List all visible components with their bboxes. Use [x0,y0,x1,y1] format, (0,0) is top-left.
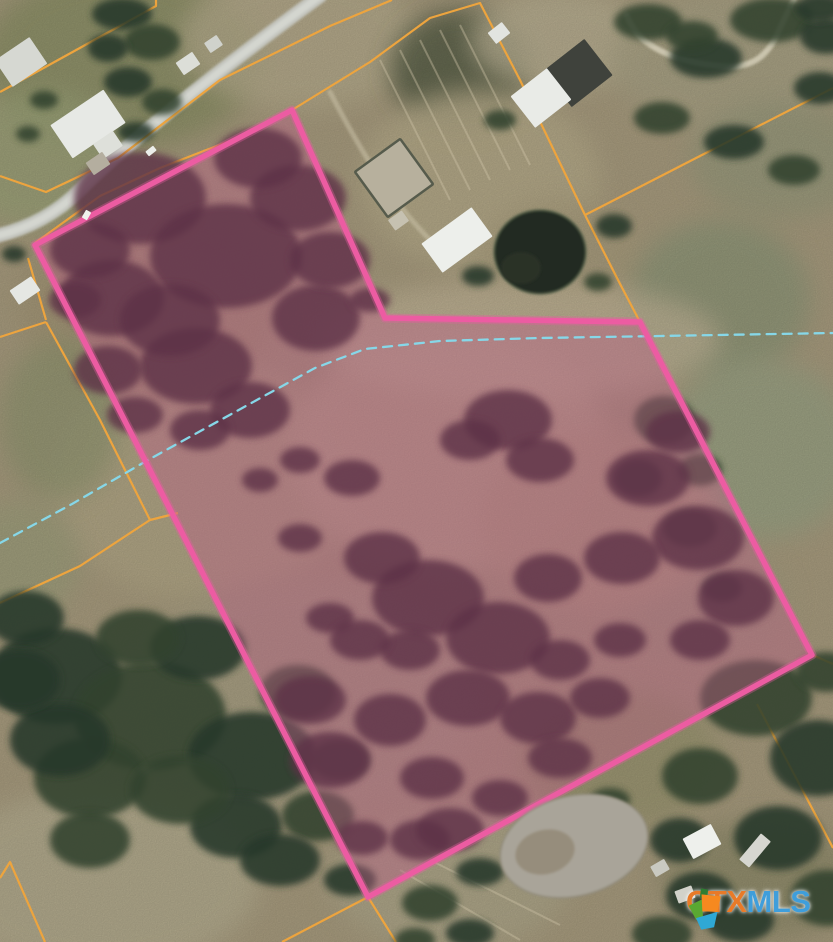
aerial-parcel-map[interactable]: CTX MLS [0,0,833,942]
pond [494,210,586,294]
pond [501,252,541,284]
map-canvas [0,0,833,942]
